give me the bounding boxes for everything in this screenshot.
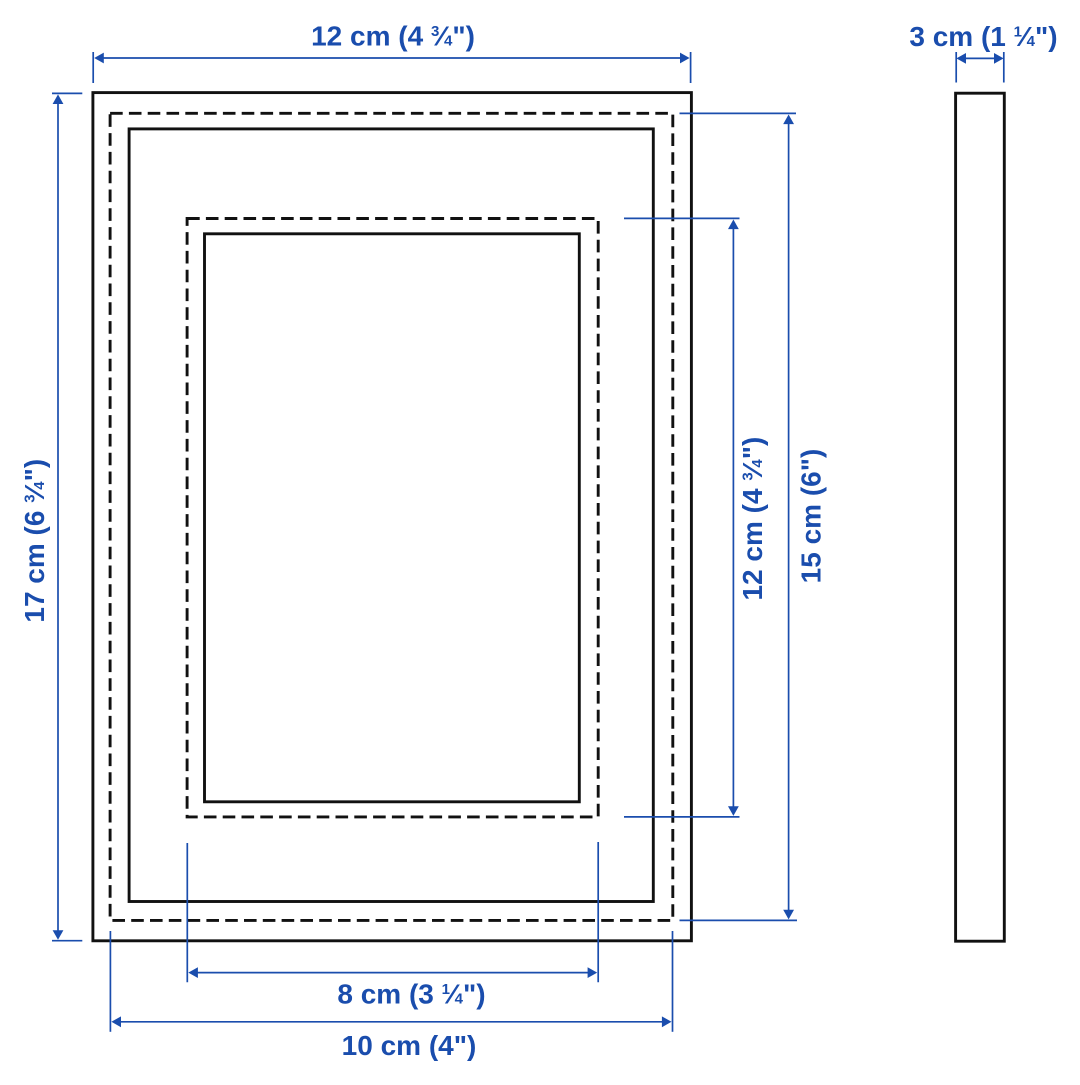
svg-text:10 cm (4"): 10 cm (4") (342, 1030, 477, 1061)
svg-text:3 cm (1 1⁄4"): 3 cm (1 1⁄4") (909, 21, 1057, 52)
svg-text:8 cm (3 1⁄4"): 8 cm (3 1⁄4") (337, 979, 485, 1010)
svg-text:15 cm (6"): 15 cm (6") (796, 449, 827, 584)
